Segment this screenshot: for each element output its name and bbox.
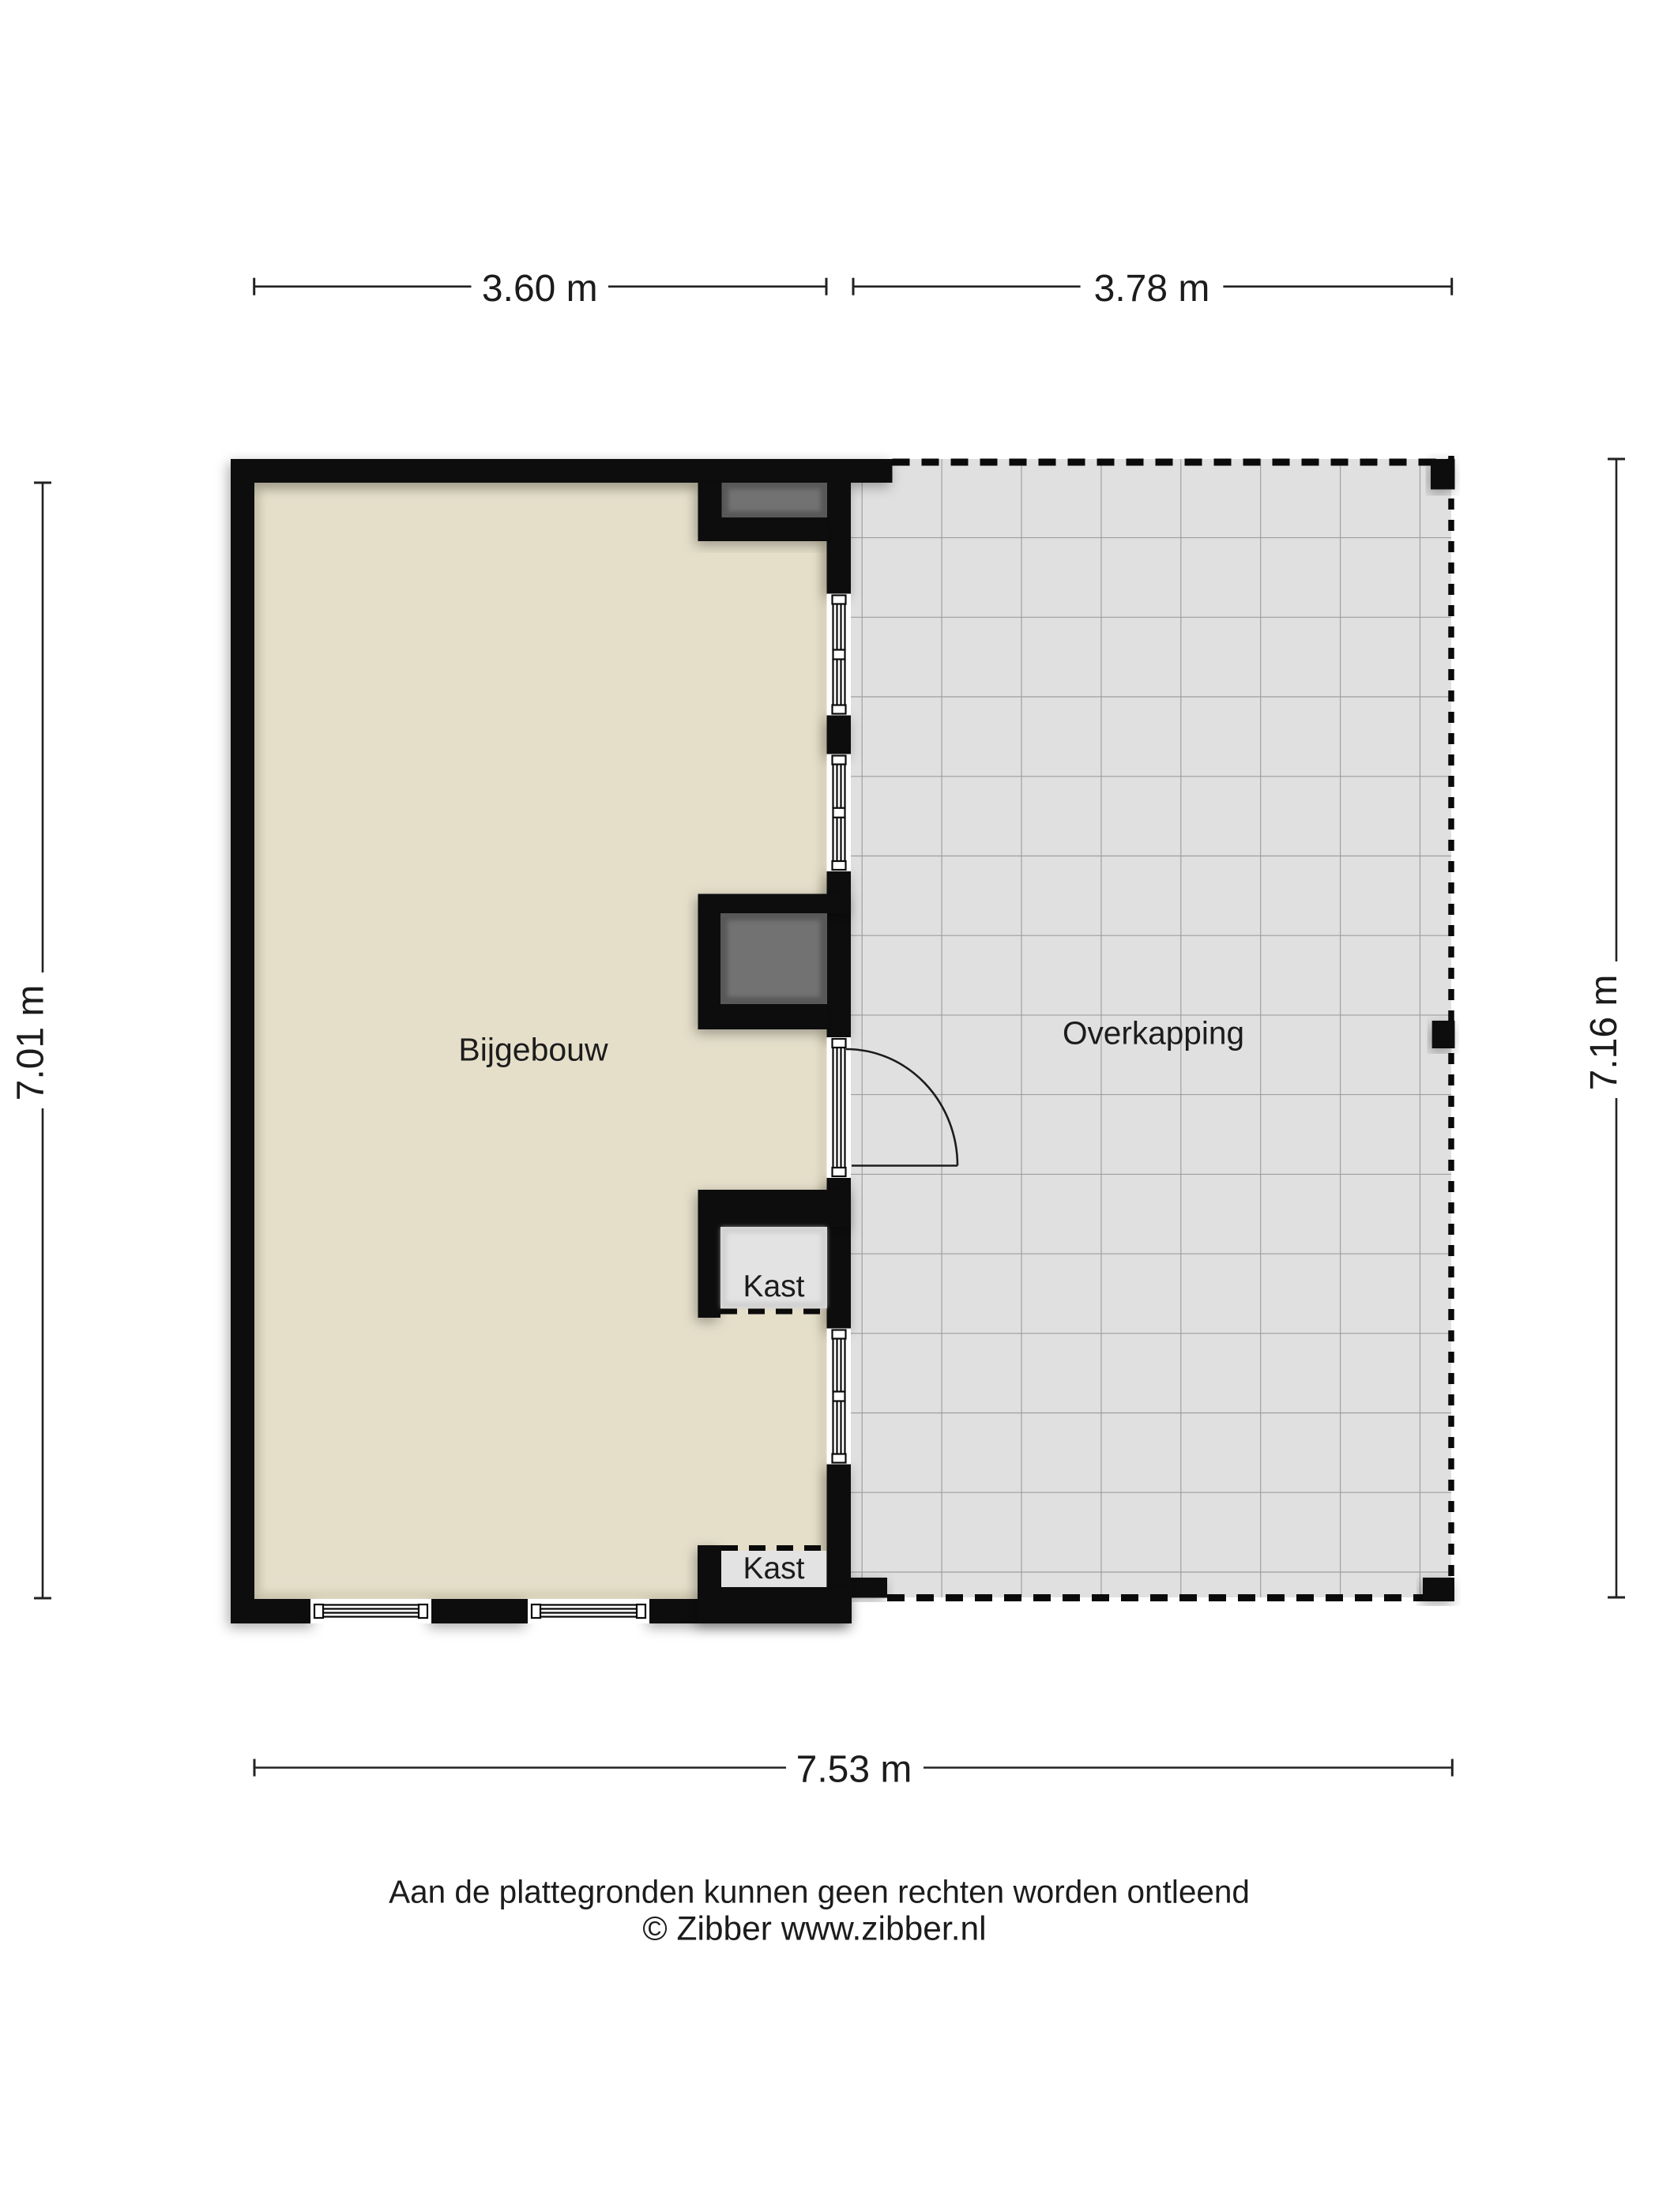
svg-text:Overkapping: Overkapping: [1063, 1015, 1244, 1051]
svg-text:7.16 m: 7.16 m: [1583, 975, 1625, 1091]
svg-text:3.78 m: 3.78 m: [1094, 268, 1210, 310]
svg-text:7.53 m: 7.53 m: [796, 1749, 912, 1791]
svg-text:Kast: Kast: [743, 1270, 804, 1303]
svg-text:Bijgebouw: Bijgebouw: [458, 1032, 608, 1068]
svg-text:7.01 m: 7.01 m: [10, 985, 52, 1101]
svg-text:Aan de plattegronden kunnen ge: Aan de plattegronden kunnen geen rechten…: [389, 1873, 1250, 1909]
svg-text:© Zibber www.zibber.nl: © Zibber www.zibber.nl: [642, 1910, 986, 1947]
svg-text:Kast: Kast: [743, 1552, 804, 1586]
svg-text:3.60 m: 3.60 m: [482, 268, 598, 310]
